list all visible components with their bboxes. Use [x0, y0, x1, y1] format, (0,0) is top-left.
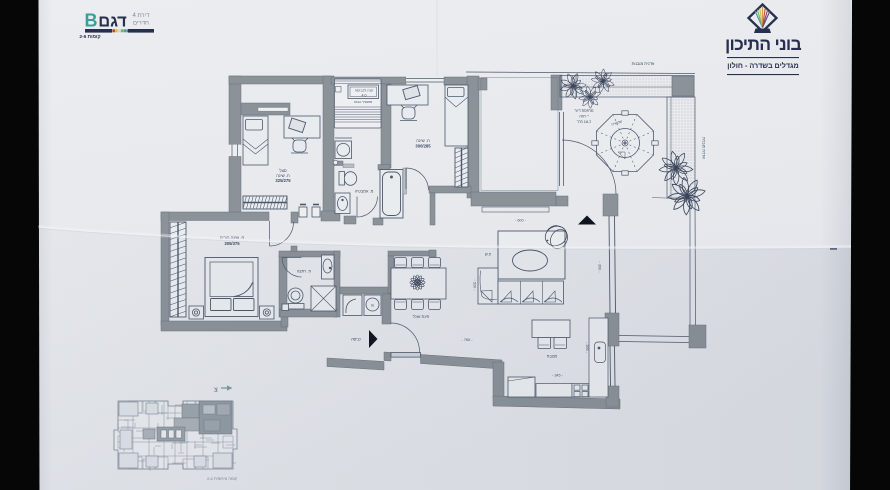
svg-text:300/285: 300/285: [415, 144, 431, 149]
svg-text:4.0: 4.0: [362, 94, 367, 98]
svg-text:קומות 2-6: קומות 2-6: [79, 34, 100, 40]
svg-text:מאוורר גבוה: מאוורר גבוה: [354, 100, 373, 104]
svg-text:דגם: דגם: [98, 13, 127, 31]
svg-text:- 600 -: - 600 -: [515, 219, 527, 223]
svg-text:כ-18 מ"ר: כ-18 מ"ר: [577, 120, 592, 124]
svg-text:י' רוזה: י' רוזה: [579, 115, 588, 119]
svg-text:B: B: [85, 11, 98, 31]
svg-text:בוני התיכון: בוני התיכון: [725, 34, 802, 54]
svg-text:אדנית מובנית: אדנית מובנית: [702, 137, 706, 159]
svg-text:פנה לכביסה: פנה לכביסה: [355, 89, 373, 93]
svg-text:דירת 4: דירת 4: [132, 13, 150, 19]
svg-text:ח. שינה: ח. שינה: [416, 138, 430, 143]
svg-text:מגדלים בשדרה - חולון: מגדלים בשדרה - חולון: [727, 61, 798, 70]
svg-text:אדנית מובנות: אדנית מובנות: [632, 61, 655, 66]
svg-text:325/275: 325/275: [275, 178, 291, 183]
svg-text:מ. אמבטיה: מ. אמבטיה: [355, 189, 374, 194]
svg-text:מרפסת דיור: מרפסת דיור: [574, 109, 593, 113]
svg-text:חדרים: חדרים: [133, 21, 149, 27]
